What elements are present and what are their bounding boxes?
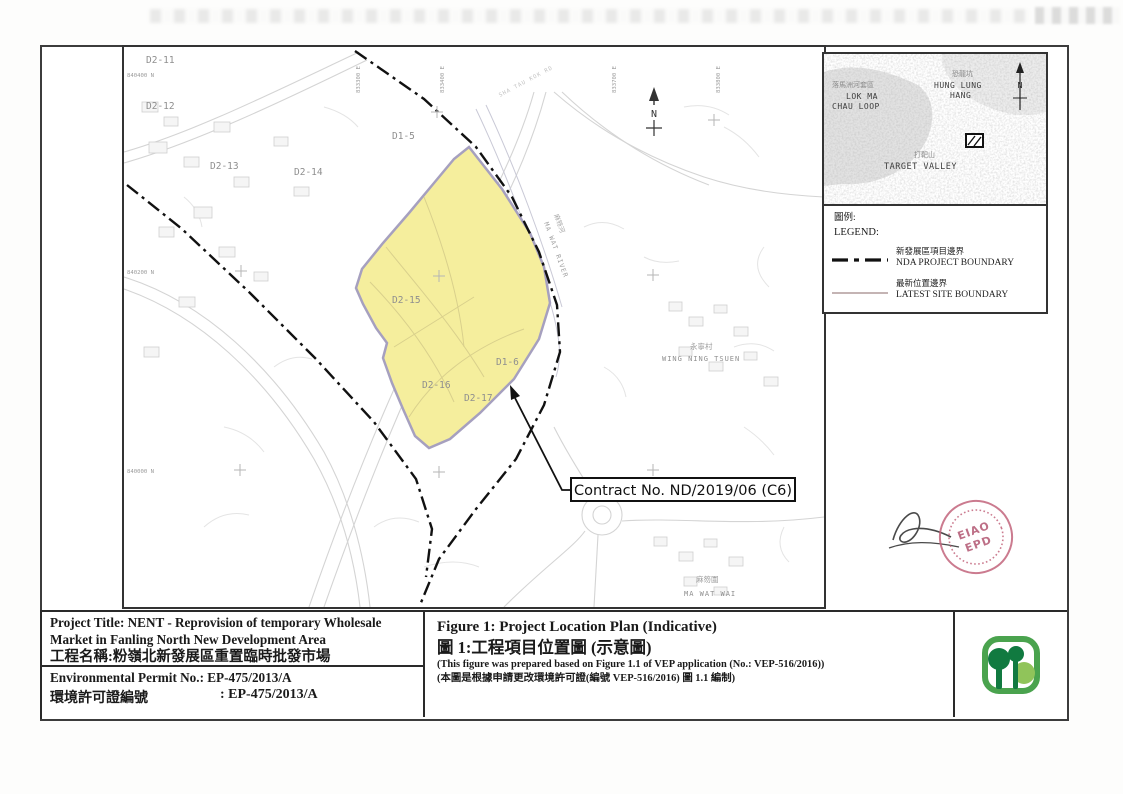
area-label-d1-6: D1-6	[496, 357, 519, 368]
permit-no-cn-label: 環境許可證編號	[50, 687, 220, 707]
area-label-d2-12: D2-12	[146, 101, 175, 112]
north-label: N	[651, 109, 657, 120]
figure-title-en: Figure 1: Project Location Plan (Indicat…	[437, 618, 953, 637]
title-block: Project Title: NENT - Reprovision of tem…	[40, 610, 1067, 719]
area-label-d2-16: D2-16	[422, 380, 451, 391]
area-label-d2-13: D2-13	[210, 161, 239, 172]
permit-no-cn-value: : EP-475/2013/A	[220, 687, 318, 707]
legend-item-nda-boundary: 新發展區項目邊界 NDA PROJECT BOUNDARY	[832, 246, 1038, 276]
project-title-cn: 工程名稱:粉嶺北新發展區重置臨時批發市場	[42, 648, 423, 667]
logo-cell	[955, 612, 1067, 717]
wing-ning-tsuen-en: WING NING TSUEN	[662, 355, 740, 363]
dashdot-line-sample	[832, 254, 888, 266]
lok-ma-chau-cn: 落馬洲河套區	[832, 80, 874, 89]
target-valley-cn: 打靶山	[914, 150, 935, 159]
ma-wat-wai-en: MA WAT WAI	[684, 590, 736, 598]
grid-label-n1: 840400 N	[127, 73, 154, 79]
hung-lung-hang-en1: HUNG LUNG	[934, 81, 982, 90]
figure-note-en: (This figure was prepared based on Figur…	[437, 658, 953, 672]
grid-label-e1: 833300 E	[356, 65, 362, 93]
legend-item2-cn: 最新位置邊界	[896, 278, 1008, 289]
legend-item2-en: LATEST SITE BOUNDARY	[896, 289, 1008, 302]
ma-wat-wai-cn: 麻笏圍	[696, 574, 719, 584]
legend-title-en: LEGEND:	[834, 226, 1046, 240]
grid-label-n2: 840200 N	[127, 270, 154, 276]
inset-north-label: N	[1018, 81, 1023, 90]
site-location-marker	[966, 134, 983, 147]
figure-note-cn: (本圖是根據申請更改環境許可證(編號 VEP-516/2016) 圖 1.1 編…	[437, 672, 953, 686]
location-plan-map: 840400 N 840200 N 840000 N 833300 E 8334…	[124, 47, 824, 607]
project-title-en: Project Title: NENT - Reprovision of tem…	[42, 612, 423, 648]
lok-ma-chau-en2: CHAU LOOP	[832, 102, 880, 111]
north-arrow-icon: N	[646, 87, 662, 136]
target-valley-en: TARGET VALLEY	[884, 162, 957, 172]
scanned-figure-page: 840400 N 840200 N 840000 N 833300 E 8334…	[0, 0, 1123, 794]
figure-title-cell: Figure 1: Project Location Plan (Indicat…	[425, 612, 955, 717]
inset-grain	[824, 54, 1046, 206]
legend-box: 圖例: LEGEND: 新發展區項目邊界 NDA PROJECT BOUNDAR…	[822, 204, 1048, 314]
lok-ma-chau-en1: LOK MA	[846, 92, 878, 101]
callout-arrowhead	[510, 385, 520, 400]
bleed-through-text-strip-right	[1035, 7, 1120, 24]
grid-label-n3: 840000 N	[127, 469, 154, 475]
area-label-d2-14: D2-14	[294, 167, 323, 178]
legend-title-cn: 圖例:	[834, 212, 1046, 225]
hung-lung-hang-en2: HANG	[950, 91, 971, 100]
callout-text: Contract No. ND/2019/06 (C6)	[574, 483, 792, 499]
bleed-through-text-strip	[150, 9, 1030, 23]
area-label-d1-5: D1-5	[392, 131, 415, 142]
area-label-d2-15: D2-15	[392, 295, 421, 306]
grid-label-e2: 833400 E	[440, 65, 446, 93]
area-label-d2-11: D2-11	[146, 55, 175, 66]
hung-lung-hang-cn: 恐龍坑	[952, 69, 973, 78]
drawing-sheet: 840400 N 840200 N 840000 N 833300 E 8334…	[40, 45, 1069, 721]
permit-no-en: Environmental Permit No.: EP-475/2013/A	[42, 667, 423, 687]
wing-ning-tsuen-cn: 永寧村	[690, 341, 713, 351]
contract-callout: Contract No. ND/2019/06 (C6)	[510, 385, 795, 501]
area-label-d2-17: D2-17	[464, 393, 493, 404]
epd-logo-icon	[979, 633, 1043, 697]
grid-label-e3: 833700 E	[612, 65, 618, 93]
key-map: 落馬洲河套區 LOK MA CHAU LOOP 恐龍坑 HUNG LUNG HA…	[824, 54, 1046, 206]
legend-item1-en: NDA PROJECT BOUNDARY	[896, 257, 1014, 270]
legend-item1-cn: 新發展區項目邊界	[896, 246, 1014, 257]
key-map-inset: 落馬洲河套區 LOK MA CHAU LOOP 恐龍坑 HUNG LUNG HA…	[822, 52, 1048, 208]
solid-line-sample	[832, 286, 888, 298]
main-map-frame: 840400 N 840200 N 840000 N 833300 E 8334…	[122, 45, 826, 609]
grid-label-e4: 833800 E	[716, 65, 722, 93]
figure-title-cn: 圖 1:工程項目位置圖 (示意圖)	[437, 637, 953, 658]
project-title-cell: Project Title: NENT - Reprovision of tem…	[42, 612, 425, 717]
eiao-epd-stamp: EIAO EPD	[934, 495, 1018, 579]
legend-item-site-boundary: 最新位置邊界 LATEST SITE BOUNDARY	[832, 278, 1038, 308]
